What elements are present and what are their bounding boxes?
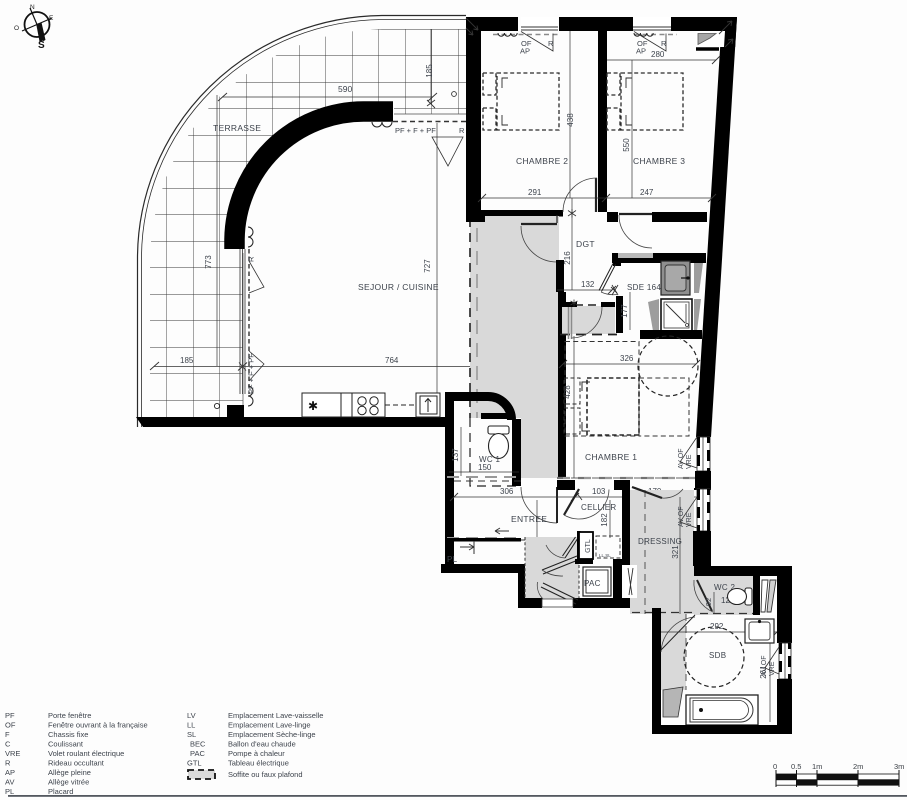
svg-text:F: F xyxy=(5,730,10,739)
svg-text:O: O xyxy=(14,25,19,32)
svg-text:0: 0 xyxy=(773,762,777,771)
svg-text:S: S xyxy=(38,40,45,51)
svg-text:PL: PL xyxy=(5,787,14,796)
svg-text:280: 280 xyxy=(651,50,665,59)
svg-text:Coulissant: Coulissant xyxy=(48,740,84,749)
svg-text:182: 182 xyxy=(600,513,609,527)
svg-text:216: 216 xyxy=(563,251,572,265)
svg-text:292: 292 xyxy=(710,622,724,631)
svg-text:727: 727 xyxy=(423,259,432,273)
svg-text:185: 185 xyxy=(425,64,434,78)
svg-text:TERRASSE: TERRASSE xyxy=(213,123,261,133)
svg-text:PAC: PAC xyxy=(584,579,601,588)
svg-text:1m: 1m xyxy=(812,762,822,771)
svg-text:92: 92 xyxy=(704,598,713,606)
svg-text:Ballon d'eau chaude: Ballon d'eau chaude xyxy=(228,740,296,749)
svg-text:0.5: 0.5 xyxy=(791,762,801,771)
svg-text:247: 247 xyxy=(640,188,654,197)
svg-text:R: R xyxy=(247,256,256,262)
svg-text:GTL: GTL xyxy=(585,539,592,553)
svg-text:AV OF: AV OF xyxy=(678,449,685,469)
svg-text:550: 550 xyxy=(622,138,631,152)
svg-text:Fenêtre ouvrant à la française: Fenêtre ouvrant à la française xyxy=(48,721,148,730)
svg-text:CHAMBRE 2: CHAMBRE 2 xyxy=(516,156,568,166)
svg-text:306: 306 xyxy=(500,487,514,496)
svg-text:AP: AP xyxy=(5,768,15,777)
svg-text:SEJOUR / CUISINE: SEJOUR / CUISINE xyxy=(358,282,439,292)
svg-text:Soffite ou faux plafond: Soffite ou faux plafond xyxy=(228,770,303,779)
svg-text:LL: LL xyxy=(187,721,195,730)
svg-text:773: 773 xyxy=(204,255,213,269)
svg-text:Volet roulant électrique: Volet roulant électrique xyxy=(48,749,124,758)
svg-text:177: 177 xyxy=(620,304,629,318)
svg-text:LL,SL: LL,SL xyxy=(599,553,611,558)
svg-text:SL: SL xyxy=(187,730,196,739)
svg-text:PAC: PAC xyxy=(190,749,205,758)
svg-text:R: R xyxy=(548,39,554,48)
svg-text:SDE 164: SDE 164 xyxy=(627,283,661,292)
svg-text:Placard: Placard xyxy=(48,787,73,796)
svg-text:PF + F + PF: PF + F + PF xyxy=(247,353,256,394)
svg-text:Pompe à chaleur: Pompe à chaleur xyxy=(228,749,285,758)
svg-text:PL: PL xyxy=(447,555,458,564)
svg-text:Chassis fixe: Chassis fixe xyxy=(48,730,88,739)
svg-text:321: 321 xyxy=(671,545,680,559)
svg-text:R: R xyxy=(661,39,667,48)
svg-text:GTL: GTL xyxy=(187,759,202,768)
svg-text:ENTREE: ENTREE xyxy=(511,514,547,524)
svg-text:103: 103 xyxy=(592,487,606,496)
svg-text:438: 438 xyxy=(566,113,575,127)
svg-text:C: C xyxy=(5,740,11,749)
svg-text:DGT: DGT xyxy=(576,239,595,249)
svg-text:DRESSING: DRESSING xyxy=(638,537,682,546)
svg-text:PF: PF xyxy=(5,711,15,720)
svg-text:Allège pleine: Allège pleine xyxy=(48,768,91,777)
svg-text:764: 764 xyxy=(385,356,399,365)
svg-text:✱: ✱ xyxy=(308,399,318,413)
svg-text:R: R xyxy=(5,759,11,768)
svg-text:BEC: BEC xyxy=(190,740,206,749)
svg-text:Porte fenêtre: Porte fenêtre xyxy=(48,711,91,720)
svg-text:Emplacement Sèche-linge: Emplacement Sèche-linge xyxy=(228,730,316,739)
svg-text:CHAMBRE 3: CHAMBRE 3 xyxy=(633,156,685,166)
svg-text:291: 291 xyxy=(528,188,542,197)
svg-text:PF + F + PF: PF + F + PF xyxy=(395,126,436,135)
svg-text:VRE: VRE xyxy=(769,661,776,676)
svg-text:326: 326 xyxy=(620,354,634,363)
svg-text:Emplacement Lave-linge: Emplacement Lave-linge xyxy=(228,721,311,730)
svg-text:OF: OF xyxy=(5,721,16,730)
svg-text:CHAMBRE 1: CHAMBRE 1 xyxy=(585,452,637,462)
svg-text:150: 150 xyxy=(478,463,492,472)
svg-text:SDB: SDB xyxy=(709,651,726,660)
svg-text:AV: AV xyxy=(5,778,14,787)
svg-text:AP: AP xyxy=(636,47,646,56)
svg-text:Emplacement Lave-vaisselle: Emplacement Lave-vaisselle xyxy=(228,711,323,720)
svg-text:3m: 3m xyxy=(894,762,904,771)
svg-text:590: 590 xyxy=(338,84,352,94)
svg-text:CELLIER: CELLIER xyxy=(581,503,616,512)
svg-text:185: 185 xyxy=(180,356,194,365)
svg-text:Allège vitrée: Allège vitrée xyxy=(48,778,89,787)
svg-text:VRE: VRE xyxy=(5,749,20,758)
svg-text:132: 132 xyxy=(581,280,595,289)
svg-text:2m: 2m xyxy=(853,762,863,771)
svg-text:R: R xyxy=(459,126,465,135)
svg-text:VRE: VRE xyxy=(686,454,693,469)
svg-text:AP: AP xyxy=(520,47,530,56)
svg-text:Tableau électrique: Tableau électrique xyxy=(228,759,289,768)
svg-text:LV: LV xyxy=(187,711,196,720)
svg-text:N: N xyxy=(30,4,35,11)
svg-text:137: 137 xyxy=(451,448,460,462)
svg-text:E: E xyxy=(49,15,54,22)
svg-text:Rideau occultant: Rideau occultant xyxy=(48,759,105,768)
